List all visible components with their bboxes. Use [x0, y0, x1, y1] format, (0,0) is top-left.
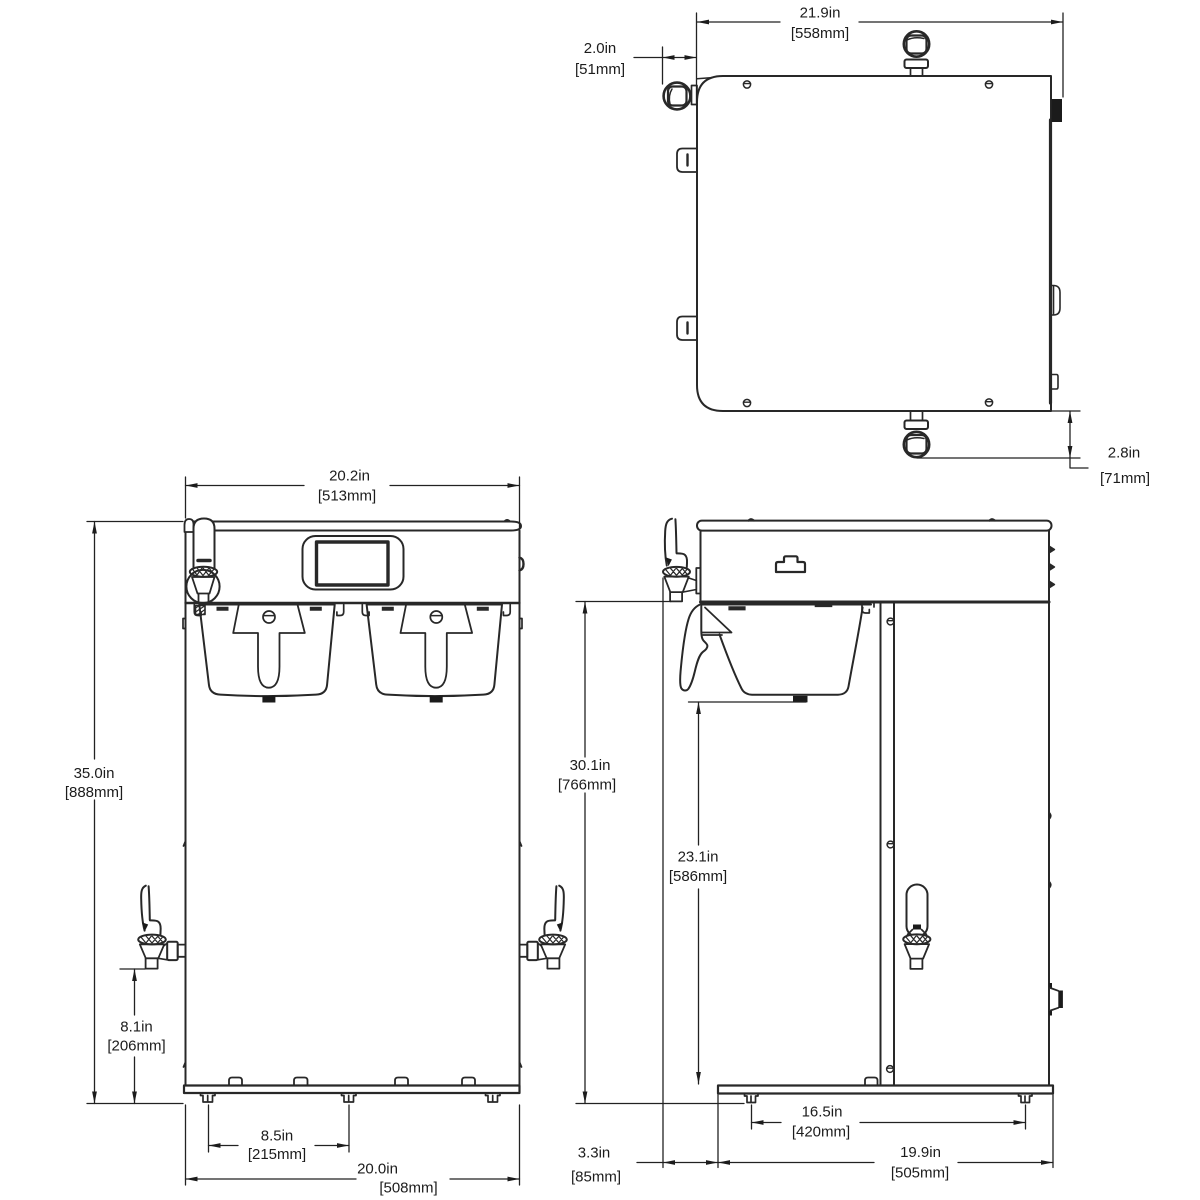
svg-text:[513mm]: [513mm]	[318, 488, 376, 505]
svg-text:2.0in: 2.0in	[584, 40, 617, 57]
svg-text:[51mm]: [51mm]	[575, 61, 625, 78]
svg-text:35.0in: 35.0in	[74, 765, 115, 782]
svg-text:30.1in: 30.1in	[570, 757, 611, 774]
svg-text:20.2in: 20.2in	[329, 468, 370, 485]
svg-text:20.0in: 20.0in	[357, 1161, 398, 1178]
svg-text:[508mm]: [508mm]	[379, 1180, 437, 1197]
svg-text:[586mm]: [586mm]	[669, 868, 727, 885]
svg-text:19.9in: 19.9in	[900, 1144, 941, 1161]
svg-text:8.1in: 8.1in	[120, 1019, 153, 1036]
svg-text:8.5in: 8.5in	[261, 1128, 294, 1145]
svg-text:[558mm]: [558mm]	[791, 25, 849, 42]
svg-text:[71mm]: [71mm]	[1100, 470, 1150, 487]
svg-text:23.1in: 23.1in	[678, 849, 719, 866]
svg-text:21.9in: 21.9in	[800, 5, 841, 22]
svg-text:[215mm]: [215mm]	[248, 1146, 306, 1163]
svg-text:16.5in: 16.5in	[802, 1104, 843, 1121]
svg-text:[505mm]: [505mm]	[891, 1165, 949, 1182]
svg-text:[888mm]: [888mm]	[65, 784, 123, 801]
svg-text:[766mm]: [766mm]	[558, 777, 616, 794]
svg-text:2.8in: 2.8in	[1108, 445, 1141, 462]
svg-text:[420mm]: [420mm]	[792, 1124, 850, 1141]
svg-text:3.3in: 3.3in	[578, 1145, 611, 1162]
svg-text:[85mm]: [85mm]	[571, 1169, 621, 1186]
svg-text:[206mm]: [206mm]	[107, 1038, 165, 1055]
